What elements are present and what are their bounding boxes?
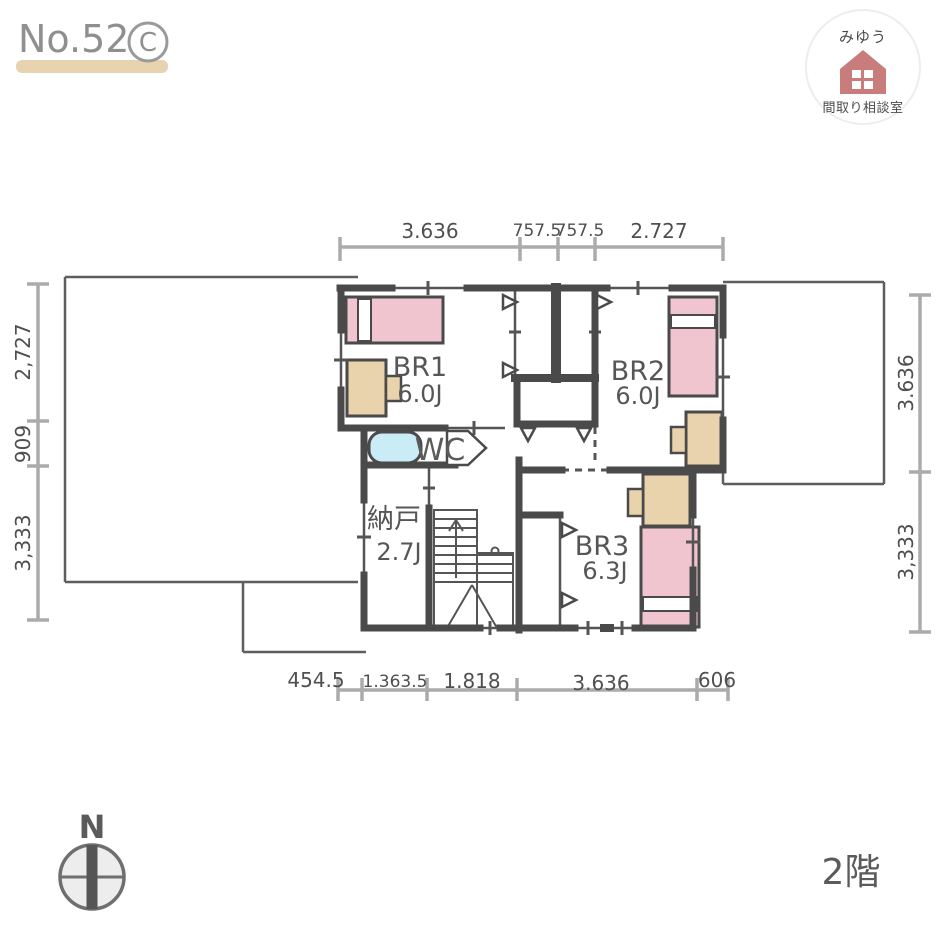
dim-bottom-5: 606 bbox=[698, 668, 736, 692]
compass-north-label: N bbox=[79, 808, 106, 846]
dim-bottom-2: 1.363.5 bbox=[363, 672, 428, 692]
dim-top-3: 757.5 bbox=[556, 221, 605, 241]
desk-br2 bbox=[671, 412, 722, 466]
floorplan-page: No.52 C みゆう 間取り相談室 bbox=[0, 0, 940, 940]
label-br1: BR1 bbox=[393, 352, 447, 383]
dim-top-2: 757.5 bbox=[513, 221, 562, 241]
dimension-right: 3.636 3,333 bbox=[894, 295, 931, 632]
stairs-up-arrow bbox=[449, 520, 463, 578]
dim-right-2: 3,333 bbox=[894, 523, 918, 580]
roof-outline-left bbox=[65, 277, 366, 652]
label-storage: 納戸 bbox=[367, 504, 421, 535]
revision-mark: C bbox=[139, 28, 157, 58]
label-storage-size: 2.7J bbox=[376, 538, 421, 566]
floorplan-drawing: No.52 C みゆう 間取り相談室 bbox=[0, 0, 940, 940]
dim-bottom-1: 454.5 bbox=[287, 668, 344, 692]
desk-br3 bbox=[628, 474, 690, 526]
logo-name: みゆう bbox=[839, 28, 887, 46]
label-br3-size: 6.3J bbox=[582, 557, 627, 585]
dim-top-1: 3.636 bbox=[401, 219, 458, 243]
dim-top-4: 2.727 bbox=[630, 219, 687, 243]
floor-label: 2階 bbox=[822, 852, 881, 893]
compass-icon: N bbox=[60, 808, 124, 909]
bed-br2 bbox=[669, 297, 717, 396]
dimension-left: 2,727 909 3,333 bbox=[11, 284, 49, 620]
studio-logo: みゆう 間取り相談室 bbox=[806, 10, 920, 124]
dim-right-1: 3.636 bbox=[894, 354, 918, 411]
balcony-outline-right bbox=[723, 282, 884, 484]
label-br1-size: 6.0J bbox=[397, 380, 442, 408]
logo-subtitle: 間取り相談室 bbox=[822, 100, 903, 116]
label-br2-size: 6.0J bbox=[615, 382, 660, 410]
toilet-icon bbox=[369, 432, 421, 463]
dim-bottom-3: 1.818 bbox=[443, 669, 500, 693]
dim-left-2: 909 bbox=[11, 425, 35, 463]
dim-left-1: 2,727 bbox=[11, 323, 35, 380]
plan-number-header: No.52 C bbox=[16, 17, 168, 73]
plan-number: No.52 bbox=[18, 17, 129, 61]
dimension-bottom: 454.5 1.363.5 1.818 3.636 606 bbox=[287, 668, 736, 701]
dimension-top: 3.636 757.5 757.5 2.727 bbox=[340, 219, 723, 261]
label-wc: WC bbox=[415, 433, 466, 468]
staircase bbox=[434, 510, 513, 628]
dim-bottom-4: 3.636 bbox=[572, 671, 629, 695]
dim-left-3: 3,333 bbox=[11, 514, 35, 571]
bed-br1 bbox=[346, 297, 443, 343]
